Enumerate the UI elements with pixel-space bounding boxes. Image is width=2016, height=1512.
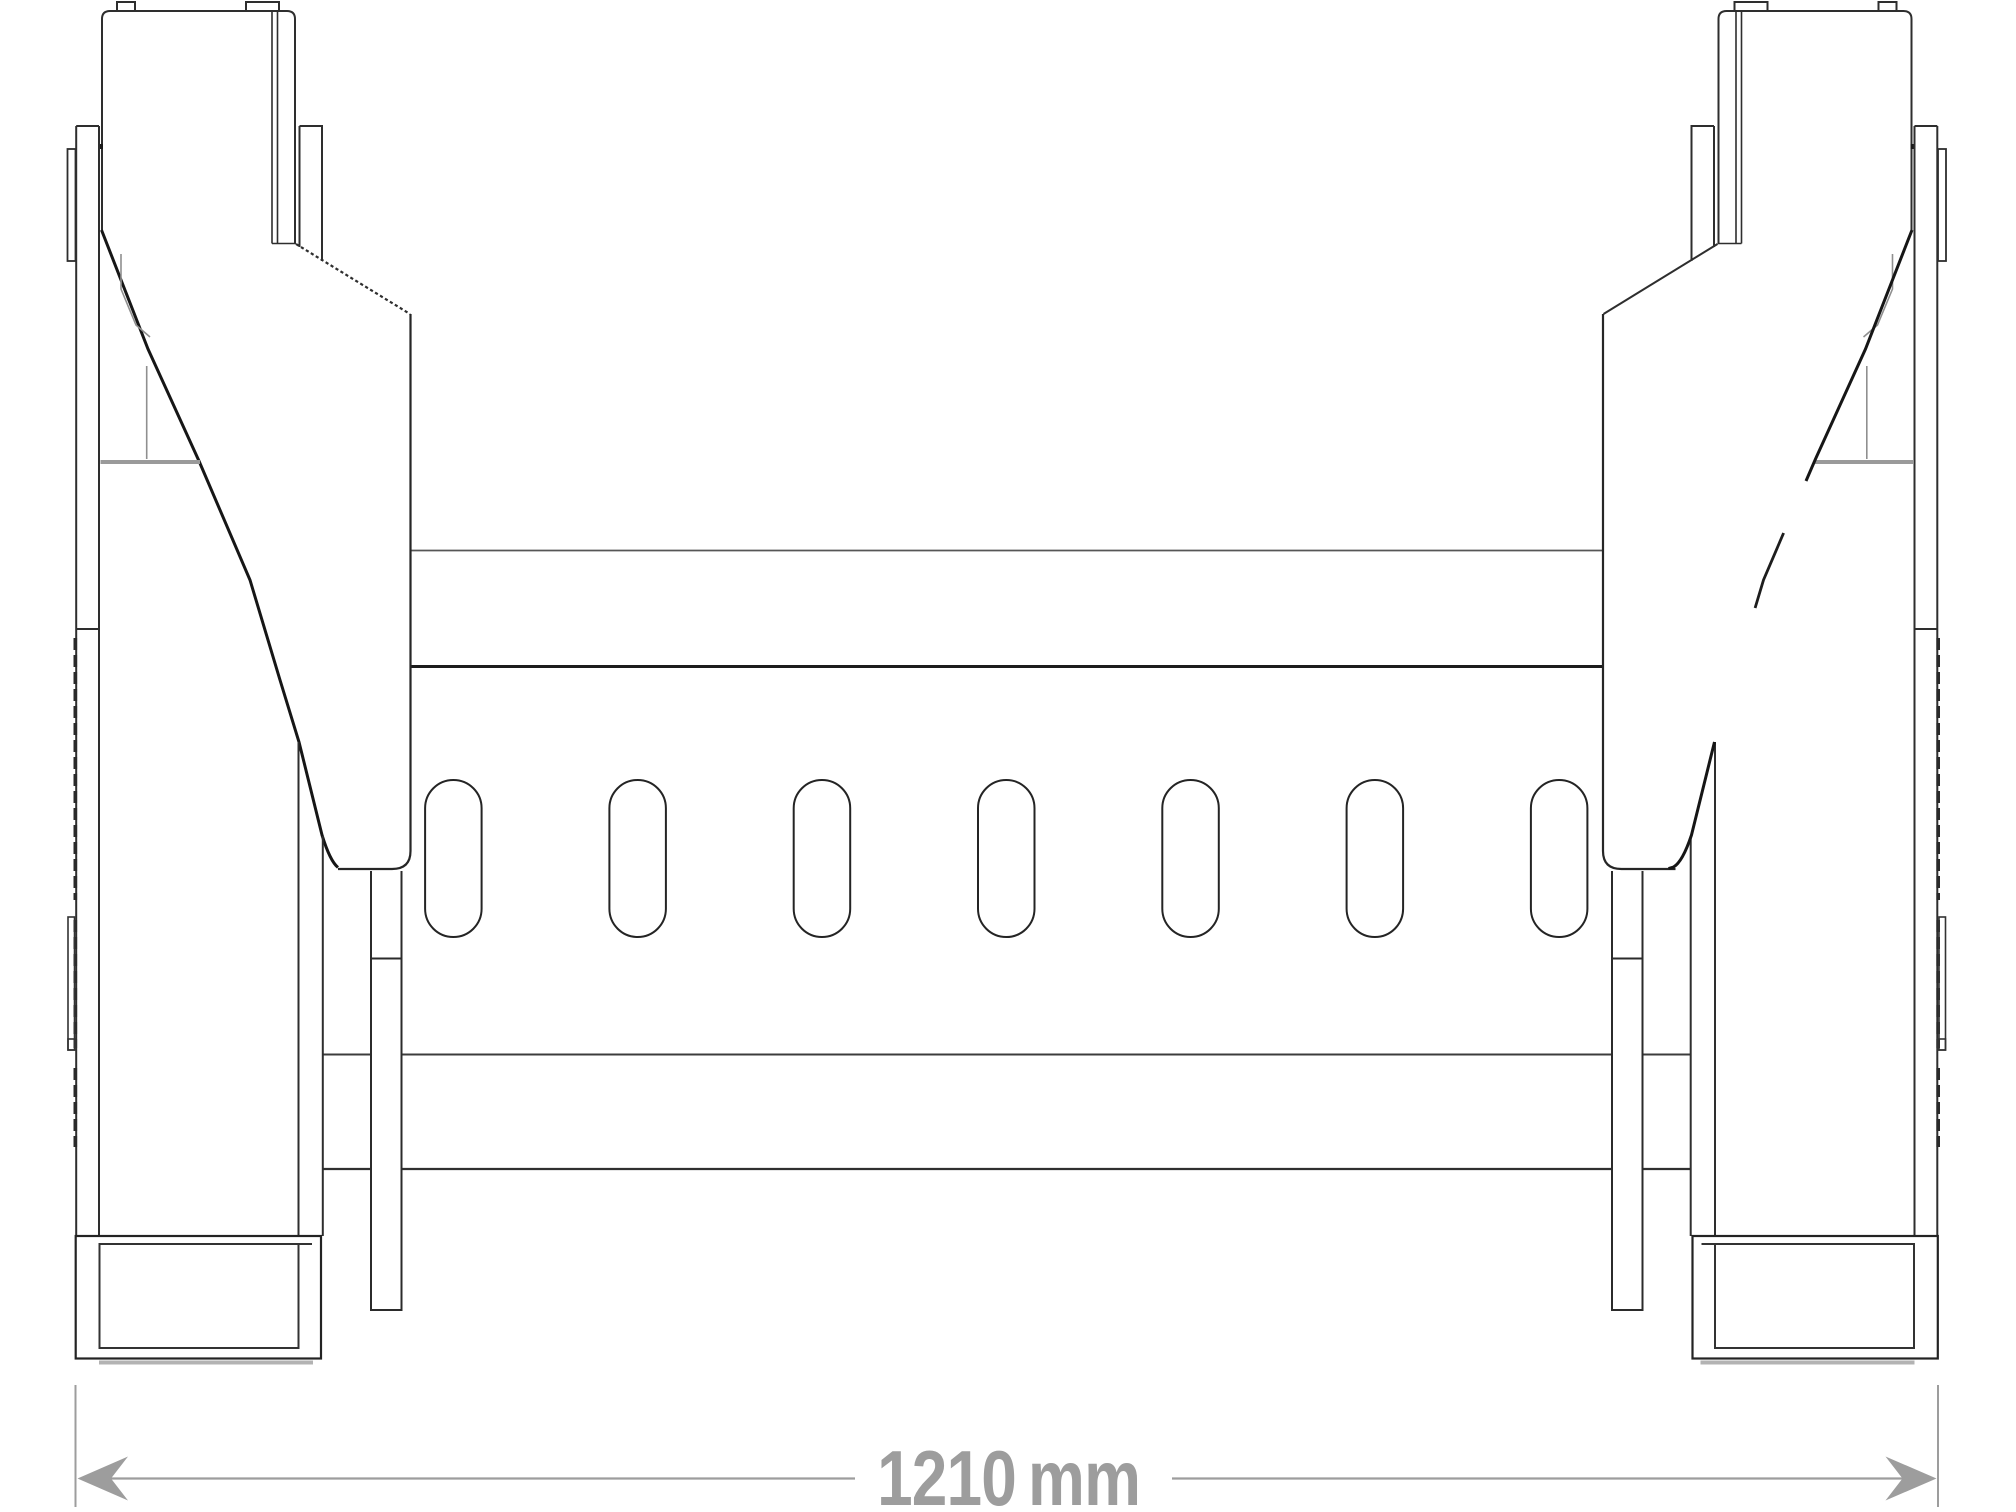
svg-text:1210 mm: 1210 mm <box>877 1435 1140 1512</box>
